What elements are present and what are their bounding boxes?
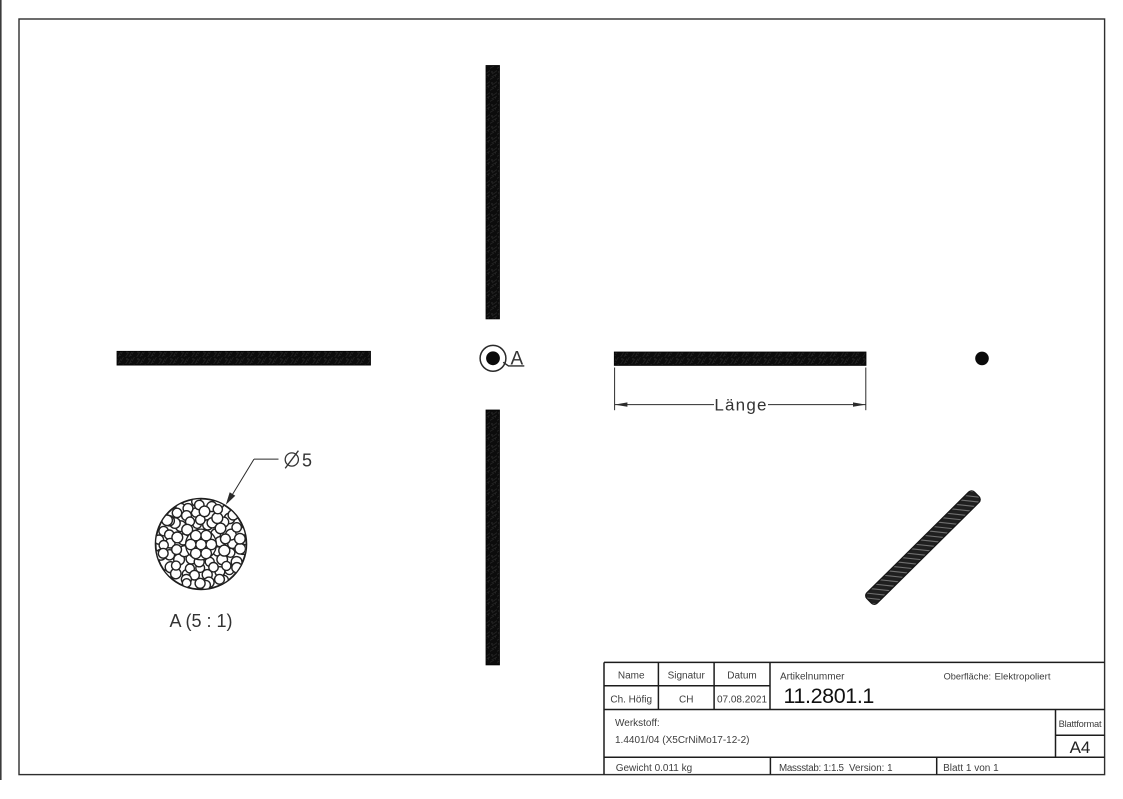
svg-text:Datum: Datum	[727, 671, 756, 682]
svg-text:Name: Name	[618, 671, 645, 682]
svg-text:Blattformat: Blattformat	[1059, 719, 1102, 729]
svg-text:Signatur: Signatur	[668, 671, 706, 682]
svg-text:Massstab: 1:1.5: Massstab: 1:1.5	[779, 763, 845, 774]
svg-text:Version: 1: Version: 1	[849, 763, 893, 774]
svg-text:A (5 : 1): A (5 : 1)	[169, 611, 232, 631]
svg-text:A: A	[510, 348, 523, 369]
svg-text:Gewicht 0.011 kg: Gewicht 0.011 kg	[616, 763, 693, 774]
svg-text:Ch. Höfig: Ch. Höfig	[610, 695, 652, 706]
svg-text:1.4401/04 (X5CrNiMo17-12-2): 1.4401/04 (X5CrNiMo17-12-2)	[615, 735, 750, 746]
svg-text:5: 5	[302, 451, 312, 471]
svg-text:Elektropoliert: Elektropoliert	[995, 671, 1051, 682]
svg-text:Oberfläche:: Oberfläche:	[944, 671, 992, 681]
svg-text:Länge: Länge	[714, 396, 767, 415]
svg-text:CH: CH	[679, 695, 693, 706]
svg-text:Artikelnummer: Artikelnummer	[780, 671, 845, 682]
svg-text:11.2801.1: 11.2801.1	[784, 684, 874, 708]
svg-text:Werkstoff:: Werkstoff:	[615, 718, 660, 729]
svg-text:A4: A4	[1070, 738, 1091, 757]
svg-text:07.08.2021: 07.08.2021	[717, 695, 767, 706]
svg-text:Blatt 1 von 1: Blatt 1 von 1	[943, 763, 999, 774]
